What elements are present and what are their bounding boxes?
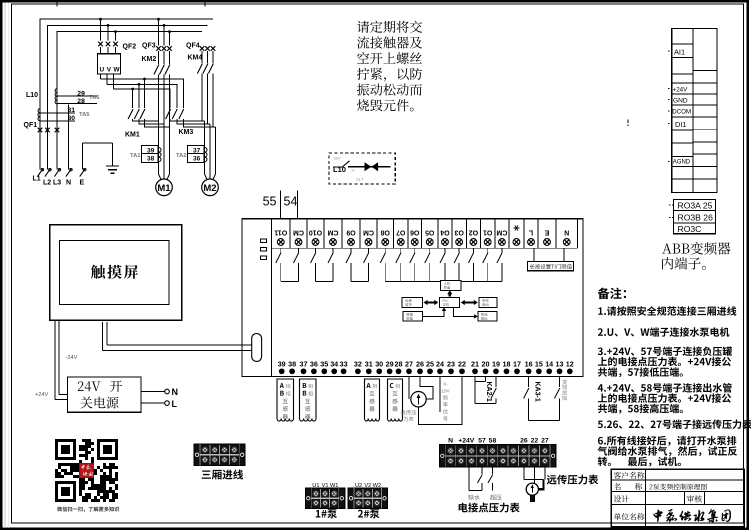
svg-text:O3: O3 xyxy=(454,229,463,236)
svg-text:N: N xyxy=(172,387,179,397)
svg-text:CM: CM xyxy=(327,229,338,236)
svg-text:O1: O1 xyxy=(483,229,492,236)
svg-text:N: N xyxy=(564,229,569,236)
svg-text:RO3A 25: RO3A 25 xyxy=(678,200,713,210)
svg-text:KM2: KM2 xyxy=(142,56,157,63)
svg-text:39: 39 xyxy=(147,147,155,154)
svg-text:KA2-1: KA2-1 xyxy=(485,382,492,402)
svg-text:QF1: QF1 xyxy=(24,122,38,129)
svg-text:O6: O6 xyxy=(410,229,419,236)
svg-text:12: 12 xyxy=(566,359,574,368)
svg-text:16: 16 xyxy=(525,359,533,368)
svg-text:GND: GND xyxy=(673,97,688,104)
svg-text:26: 26 xyxy=(416,359,424,368)
svg-text:V2: V2 xyxy=(364,483,371,489)
svg-text:L10: L10 xyxy=(26,92,38,99)
svg-text:+24V: +24V xyxy=(458,437,475,444)
svg-text:O7: O7 xyxy=(396,229,405,236)
svg-text:TA2: TA2 xyxy=(176,153,187,159)
svg-text:N: N xyxy=(66,180,71,187)
svg-text:54: 54 xyxy=(284,195,298,209)
svg-text:L3: L3 xyxy=(53,180,61,187)
svg-text:17: 17 xyxy=(513,359,521,368)
svg-text:TA6: TA6 xyxy=(89,95,100,101)
svg-text:34: 34 xyxy=(330,359,338,368)
svg-text:M1: M1 xyxy=(157,183,171,194)
svg-text:L: L xyxy=(172,399,178,409)
svg-text:W1: W1 xyxy=(330,483,338,489)
svg-text:18: 18 xyxy=(503,359,511,368)
svg-text:KA3-1: KA3-1 xyxy=(534,382,541,402)
svg-text:O8: O8 xyxy=(380,229,389,236)
svg-text:20: 20 xyxy=(482,359,490,368)
svg-text:36: 36 xyxy=(193,155,201,162)
svg-text:28: 28 xyxy=(395,359,403,368)
svg-text:14: 14 xyxy=(545,359,553,368)
svg-text:13: 13 xyxy=(556,359,564,368)
svg-text:L: L xyxy=(528,229,533,236)
svg-text:38: 38 xyxy=(147,155,155,162)
svg-text:W2: W2 xyxy=(373,483,381,489)
svg-text:KM4: KM4 xyxy=(188,55,203,62)
svg-text:38: 38 xyxy=(288,359,296,368)
svg-text:U V W: U V W xyxy=(100,67,121,74)
svg-text:36: 36 xyxy=(310,359,318,368)
svg-text:32: 32 xyxy=(354,359,362,368)
svg-text:AI1: AI1 xyxy=(674,48,685,57)
svg-text:O10: O10 xyxy=(309,229,322,236)
svg-text:SB7: SB7 xyxy=(334,156,342,161)
svg-text:37: 37 xyxy=(300,359,308,368)
svg-text:TA1: TA1 xyxy=(130,153,141,159)
svg-text:-24V: -24V xyxy=(66,355,78,361)
svg-text:L2: L2 xyxy=(43,180,51,187)
svg-text:27: 27 xyxy=(405,359,413,368)
svg-text:N: N xyxy=(448,437,453,444)
svg-text:58: 58 xyxy=(489,437,497,444)
svg-text:22: 22 xyxy=(458,359,466,368)
svg-text:CM: CM xyxy=(363,229,374,236)
svg-text:10V: 10V xyxy=(441,389,450,395)
svg-text:RO3C: RO3C xyxy=(678,224,702,234)
svg-text:CM: CM xyxy=(496,229,507,236)
svg-text:33: 33 xyxy=(340,359,348,368)
svg-text:U2: U2 xyxy=(355,483,362,489)
svg-text:QF4: QF4 xyxy=(186,43,200,50)
svg-text:M2: M2 xyxy=(203,183,216,194)
svg-text:V1: V1 xyxy=(322,483,329,489)
svg-text:21: 21 xyxy=(471,359,479,368)
svg-text:26: 26 xyxy=(520,437,528,444)
svg-text:O11: O11 xyxy=(274,229,287,236)
svg-text:+24V: +24V xyxy=(35,392,48,398)
svg-text:30: 30 xyxy=(375,359,383,368)
svg-text:O4: O4 xyxy=(440,229,449,236)
svg-text:L1: L1 xyxy=(33,176,41,183)
svg-text:22: 22 xyxy=(531,437,539,444)
svg-text:DCOM: DCOM xyxy=(672,108,691,115)
svg-text:29: 29 xyxy=(77,90,85,97)
svg-text:O5: O5 xyxy=(425,229,434,236)
svg-text:35: 35 xyxy=(320,359,328,368)
svg-text:19: 19 xyxy=(492,359,500,368)
svg-text:DI1: DI1 xyxy=(675,120,687,129)
svg-text:U1: U1 xyxy=(312,483,319,489)
svg-text:31: 31 xyxy=(365,359,373,368)
svg-text:RO3B 26: RO3B 26 xyxy=(678,213,714,223)
svg-text:39: 39 xyxy=(278,359,286,368)
svg-text:CM: CM xyxy=(293,229,304,236)
svg-text:E: E xyxy=(80,180,85,187)
svg-text:25: 25 xyxy=(426,359,434,368)
svg-text:23: 23 xyxy=(447,359,455,368)
svg-text:15: 15 xyxy=(535,359,543,368)
svg-text:XL7: XL7 xyxy=(356,177,364,182)
svg-text:AGND: AGND xyxy=(673,160,691,166)
svg-text:24: 24 xyxy=(436,359,444,368)
svg-text:O9: O9 xyxy=(346,229,355,236)
svg-text:O2: O2 xyxy=(469,229,478,236)
svg-text:37: 37 xyxy=(193,147,201,154)
svg-text:KM3: KM3 xyxy=(179,129,194,136)
svg-text:+24V: +24V xyxy=(673,87,688,94)
svg-text:27: 27 xyxy=(541,437,549,444)
svg-text:0-: 0- xyxy=(443,382,448,388)
svg-text:57: 57 xyxy=(478,437,486,444)
svg-text:28: 28 xyxy=(77,98,85,105)
svg-text:29: 29 xyxy=(386,359,394,368)
svg-text:E: E xyxy=(544,229,549,236)
svg-text:TA5: TA5 xyxy=(79,112,90,118)
svg-text:KM1: KM1 xyxy=(125,132,140,139)
svg-text:55: 55 xyxy=(263,195,277,209)
svg-text:QF3: QF3 xyxy=(142,43,156,50)
svg-text:QF2: QF2 xyxy=(123,44,137,51)
